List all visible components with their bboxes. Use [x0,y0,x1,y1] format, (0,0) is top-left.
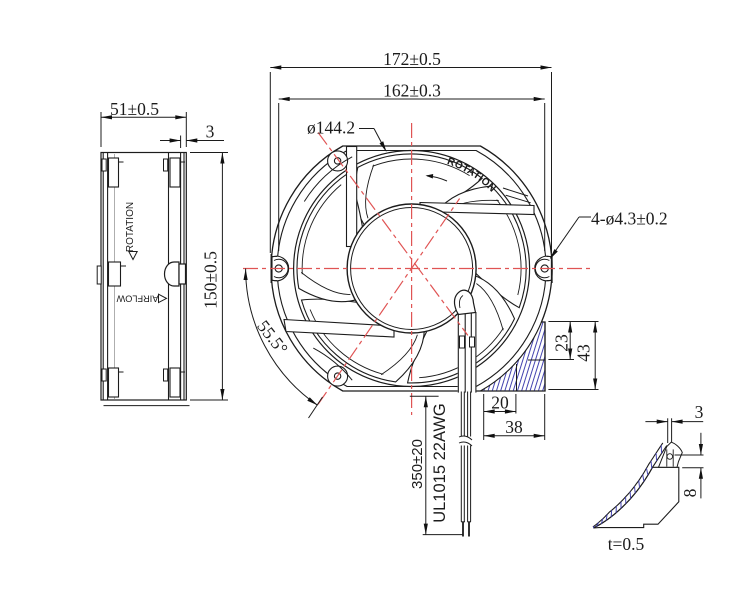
svg-text:4-ø4.3±0.2: 4-ø4.3±0.2 [591,209,668,229]
svg-text:23: 23 [552,334,572,352]
svg-text:ø144.2: ø144.2 [307,118,355,138]
svg-text:162±0.3: 162±0.3 [383,81,441,101]
svg-text:43: 43 [574,344,594,362]
svg-text:172±0.5: 172±0.5 [383,49,441,69]
svg-text:38: 38 [505,417,523,437]
svg-text:t=0.5: t=0.5 [608,534,645,554]
svg-text:51±0.5: 51±0.5 [110,99,159,119]
svg-text:350±20: 350±20 [409,439,426,489]
svg-text:ROTATION: ROTATION [125,202,136,252]
svg-text:20: 20 [491,393,509,413]
svg-text:UL1015 22AWG: UL1015 22AWG [431,403,449,523]
svg-text:3: 3 [695,402,704,422]
svg-text:3: 3 [206,122,215,142]
svg-text:8: 8 [680,488,700,497]
svg-text:AIRFLOW: AIRFLOW [116,294,158,304]
svg-text:150±0.5: 150±0.5 [201,251,221,309]
